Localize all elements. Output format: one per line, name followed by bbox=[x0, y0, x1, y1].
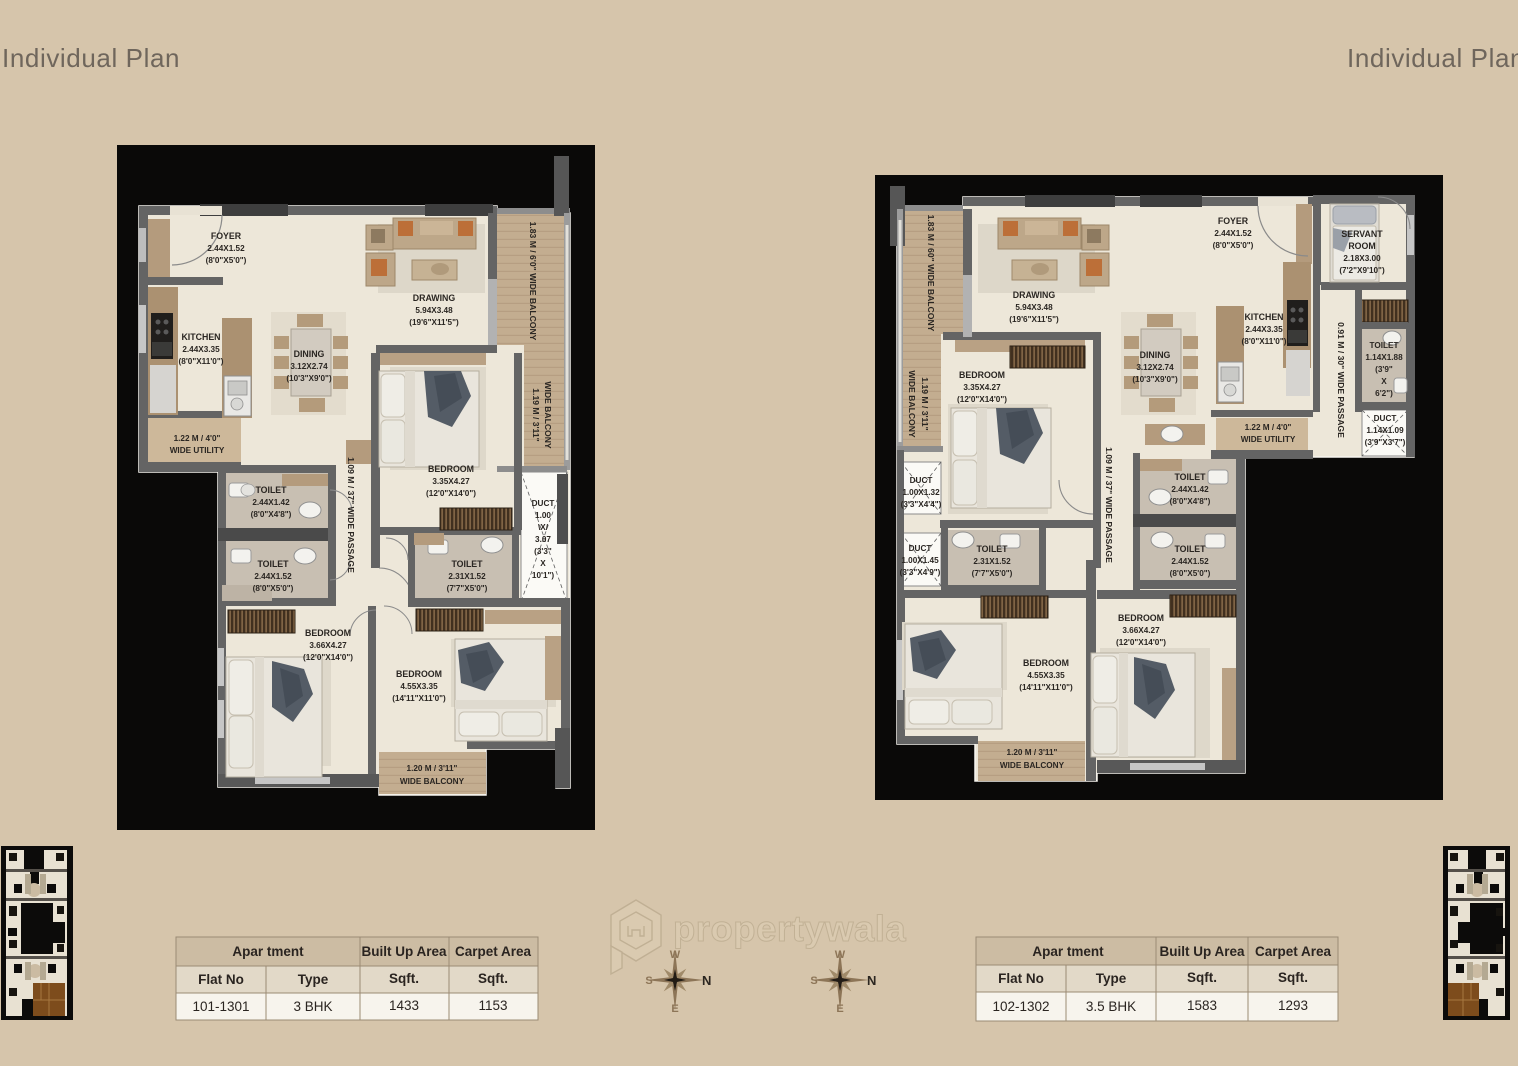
svg-text:WIDE BALCONY: WIDE BALCONY bbox=[907, 370, 917, 438]
svg-text:Individual Plan: Individual Plan bbox=[1347, 43, 1518, 73]
svg-text:2.18X3.00: 2.18X3.00 bbox=[1343, 254, 1381, 263]
svg-text:(8'0"X11'0"): (8'0"X11'0") bbox=[1242, 337, 1287, 346]
svg-text:WIDE UTILITY: WIDE UTILITY bbox=[1241, 435, 1296, 444]
svg-text:Individual Plan: Individual Plan bbox=[2, 43, 180, 73]
svg-text:3.35X4.27: 3.35X4.27 bbox=[432, 477, 470, 486]
svg-text:TOILET: TOILET bbox=[976, 544, 1008, 554]
svg-text:FOYER: FOYER bbox=[1218, 216, 1249, 226]
svg-text:4.55X3.35: 4.55X3.35 bbox=[400, 682, 438, 691]
svg-text:(8'0"X4'8"): (8'0"X4'8") bbox=[251, 510, 292, 519]
svg-text:3.66X4.27: 3.66X4.27 bbox=[309, 641, 347, 650]
svg-text:1.20 M / 3'11": 1.20 M / 3'11" bbox=[407, 764, 458, 773]
svg-text:(7'7"X5'0"): (7'7"X5'0") bbox=[447, 584, 488, 593]
svg-text:KITCHEN: KITCHEN bbox=[1244, 312, 1283, 322]
svg-text:(14'11"X11'0"): (14'11"X11'0") bbox=[1019, 683, 1073, 692]
svg-text:DINING: DINING bbox=[1140, 350, 1171, 360]
svg-text:(12'0"X14'0"): (12'0"X14'0") bbox=[303, 653, 353, 662]
svg-text:3.66X4.27: 3.66X4.27 bbox=[1122, 626, 1160, 635]
svg-text:W: W bbox=[670, 949, 681, 961]
svg-text:4.55X3.35: 4.55X3.35 bbox=[1027, 671, 1065, 680]
svg-text:(10'3"X9'0"): (10'3"X9'0") bbox=[286, 374, 332, 383]
svg-text:DUCT: DUCT bbox=[909, 544, 932, 553]
svg-text:Carpet Area: Carpet Area bbox=[1255, 944, 1332, 959]
svg-text:WIDE BALCONY: WIDE BALCONY bbox=[1000, 761, 1065, 770]
svg-text:1.20 M / 3'11": 1.20 M / 3'11" bbox=[1007, 748, 1058, 757]
svg-text:10'1"): 10'1") bbox=[532, 571, 554, 580]
svg-text:Flat No: Flat No bbox=[198, 972, 244, 987]
svg-text:TOILET: TOILET bbox=[1174, 472, 1206, 482]
svg-text:E: E bbox=[671, 1003, 678, 1015]
svg-text:(19'6"X11'5"): (19'6"X11'5") bbox=[1009, 315, 1059, 324]
svg-text:Type: Type bbox=[1096, 971, 1127, 986]
svg-text:TOILET: TOILET bbox=[1174, 544, 1206, 554]
svg-text:TOILET: TOILET bbox=[255, 485, 287, 495]
svg-text:1.19 M / 3'11": 1.19 M / 3'11" bbox=[920, 377, 930, 430]
svg-text:5.94X3.48: 5.94X3.48 bbox=[415, 306, 453, 315]
svg-text:3.35X4.27: 3.35X4.27 bbox=[963, 383, 1001, 392]
svg-text:2.31X1.52: 2.31X1.52 bbox=[973, 557, 1011, 566]
svg-text:2.44X3.35: 2.44X3.35 bbox=[1245, 325, 1283, 334]
svg-text:TOILET: TOILET bbox=[1370, 341, 1399, 350]
svg-text:DUCT: DUCT bbox=[910, 476, 933, 485]
svg-text:N: N bbox=[867, 973, 876, 988]
svg-text:1433: 1433 bbox=[389, 998, 419, 1013]
svg-text:102-1302: 102-1302 bbox=[992, 999, 1049, 1014]
svg-text:E: E bbox=[836, 1003, 843, 1015]
svg-text:1.00: 1.00 bbox=[535, 511, 551, 520]
svg-text:1293: 1293 bbox=[1278, 998, 1308, 1013]
svg-text:X: X bbox=[1381, 377, 1387, 386]
svg-text:3.12X2.74: 3.12X2.74 bbox=[1136, 363, 1174, 372]
svg-text:N: N bbox=[702, 973, 711, 988]
svg-text:2.44X1.52: 2.44X1.52 bbox=[1171, 557, 1209, 566]
svg-text:(3'3"X4'4"): (3'3"X4'4") bbox=[901, 500, 942, 509]
svg-text:SERVANT: SERVANT bbox=[1341, 229, 1383, 239]
svg-text:WIDE BALCONY: WIDE BALCONY bbox=[543, 381, 553, 449]
svg-text:Apar tment: Apar tment bbox=[232, 944, 304, 959]
svg-text:1.14X1.88: 1.14X1.88 bbox=[1365, 353, 1403, 362]
svg-text:BEDROOM: BEDROOM bbox=[1118, 613, 1164, 623]
svg-text:Apar tment: Apar tment bbox=[1032, 944, 1104, 959]
svg-text:\X/: \X/ bbox=[538, 523, 549, 532]
svg-text:2.44X1.52: 2.44X1.52 bbox=[207, 244, 245, 253]
svg-text:2.44X1.52: 2.44X1.52 bbox=[254, 572, 292, 581]
svg-text:1.00X1.45: 1.00X1.45 bbox=[901, 556, 939, 565]
svg-text:KITCHEN: KITCHEN bbox=[181, 332, 220, 342]
svg-text:ROOM: ROOM bbox=[1348, 241, 1375, 251]
svg-text:Sqft.: Sqft. bbox=[478, 971, 508, 986]
svg-text:BEDROOM: BEDROOM bbox=[305, 628, 351, 638]
svg-text:2.44X3.35: 2.44X3.35 bbox=[182, 345, 220, 354]
svg-text:(12'0"X14'0"): (12'0"X14'0") bbox=[1116, 638, 1166, 647]
svg-text:(3'9": (3'9" bbox=[1375, 365, 1393, 374]
svg-text:(19'6"X11'5"): (19'6"X11'5") bbox=[409, 318, 459, 327]
svg-text:Sqft.: Sqft. bbox=[389, 971, 419, 986]
svg-text:1.22 M / 4'0": 1.22 M / 4'0" bbox=[174, 434, 221, 443]
svg-text:DINING: DINING bbox=[294, 349, 325, 359]
svg-text:(10'3"X9'0"): (10'3"X9'0") bbox=[1132, 375, 1178, 384]
svg-text:BEDROOM: BEDROOM bbox=[396, 669, 442, 679]
svg-text:propertywala: propertywala bbox=[673, 908, 906, 949]
svg-text:(8'0"X5'0"): (8'0"X5'0") bbox=[1213, 241, 1254, 250]
svg-text:1.00X1.32: 1.00X1.32 bbox=[902, 488, 940, 497]
svg-text:Sqft.: Sqft. bbox=[1278, 970, 1308, 985]
svg-text:FOYER: FOYER bbox=[211, 231, 242, 241]
svg-text:5.94X3.48: 5.94X3.48 bbox=[1015, 303, 1053, 312]
svg-text:WIDE UTILITY: WIDE UTILITY bbox=[170, 446, 225, 455]
svg-text:Built Up Area: Built Up Area bbox=[1159, 944, 1244, 959]
svg-text:DUCT: DUCT bbox=[1374, 414, 1397, 423]
svg-text:2.44X1.42: 2.44X1.42 bbox=[1171, 485, 1209, 494]
svg-text:3.12X2.74: 3.12X2.74 bbox=[290, 362, 328, 371]
svg-text:2.44X1.52: 2.44X1.52 bbox=[1214, 229, 1252, 238]
svg-text:3.07: 3.07 bbox=[535, 535, 551, 544]
svg-text:2.44X1.42: 2.44X1.42 bbox=[252, 498, 290, 507]
svg-text:(8'0"X5'0"): (8'0"X5'0") bbox=[1170, 569, 1211, 578]
svg-text:(8'0"X4'8"): (8'0"X4'8") bbox=[1170, 497, 1211, 506]
svg-text:BEDROOM: BEDROOM bbox=[1023, 658, 1069, 668]
svg-text:(8'0"X11'0"): (8'0"X11'0") bbox=[179, 357, 224, 366]
svg-text:DRAWING: DRAWING bbox=[413, 293, 456, 303]
svg-text:(8'0"X5'0"): (8'0"X5'0") bbox=[206, 256, 247, 265]
svg-text:1.14X1.09: 1.14X1.09 bbox=[1366, 426, 1404, 435]
svg-text:WIDE BALCONY: WIDE BALCONY bbox=[400, 777, 465, 786]
svg-text:(14'11"X11'0"): (14'11"X11'0") bbox=[392, 694, 446, 703]
svg-text:1.83 M / 6'0" WIDE BALCONY: 1.83 M / 6'0" WIDE BALCONY bbox=[528, 222, 538, 341]
svg-text:1.09 M / 37" WIDE PASSAGE: 1.09 M / 37" WIDE PASSAGE bbox=[1104, 447, 1114, 563]
svg-text:(7'2"X9'10"): (7'2"X9'10") bbox=[1339, 266, 1385, 275]
svg-text:1583: 1583 bbox=[1187, 998, 1217, 1013]
svg-text:Carpet Area: Carpet Area bbox=[455, 944, 532, 959]
svg-text:W: W bbox=[835, 949, 846, 961]
svg-text:(7'7"X5'0"): (7'7"X5'0") bbox=[972, 569, 1013, 578]
svg-text:(3'3": (3'3" bbox=[534, 547, 552, 556]
svg-text:Type: Type bbox=[298, 972, 329, 987]
svg-text:(3'3"X4'9"): (3'3"X4'9") bbox=[900, 568, 941, 577]
svg-text:S: S bbox=[810, 975, 817, 987]
svg-text:Sqft.: Sqft. bbox=[1187, 970, 1217, 985]
svg-text:1.09 M / 37" WIDE PASSAGE: 1.09 M / 37" WIDE PASSAGE bbox=[346, 457, 356, 573]
svg-text:(8'0"X5'0"): (8'0"X5'0") bbox=[253, 584, 294, 593]
svg-text:3.5 BHK: 3.5 BHK bbox=[1086, 999, 1136, 1014]
svg-text:TOILET: TOILET bbox=[257, 559, 289, 569]
svg-text:1.19 M / 3'11": 1.19 M / 3'11" bbox=[531, 388, 541, 441]
svg-text:S: S bbox=[645, 975, 652, 987]
svg-text:1.83 M / 60" WIDE BALCONY: 1.83 M / 60" WIDE BALCONY bbox=[926, 215, 936, 332]
svg-text:X: X bbox=[540, 559, 546, 568]
svg-text:101-1301: 101-1301 bbox=[192, 999, 249, 1014]
svg-text:BEDROOM: BEDROOM bbox=[959, 370, 1005, 380]
svg-text:(12'0"X14'0"): (12'0"X14'0") bbox=[426, 489, 476, 498]
svg-text:Flat No: Flat No bbox=[998, 971, 1044, 986]
svg-text:TOILET: TOILET bbox=[451, 559, 483, 569]
svg-text:DUCT: DUCT bbox=[532, 499, 555, 508]
svg-text:Built Up Area: Built Up Area bbox=[361, 944, 446, 959]
svg-text:0.91 M / 30" WIDE PASSAGE: 0.91 M / 30" WIDE PASSAGE bbox=[1336, 322, 1346, 438]
svg-text:1.22 M / 4'0": 1.22 M / 4'0" bbox=[1245, 423, 1292, 432]
svg-text:3 BHK: 3 BHK bbox=[293, 999, 332, 1014]
svg-text:2.31X1.52: 2.31X1.52 bbox=[448, 572, 486, 581]
svg-text:1153: 1153 bbox=[478, 998, 507, 1013]
svg-text:6'2"): 6'2") bbox=[1375, 389, 1393, 398]
svg-text:BEDROOM: BEDROOM bbox=[428, 464, 474, 474]
svg-text:DRAWING: DRAWING bbox=[1013, 290, 1056, 300]
svg-text:(3'9"X3'7"): (3'9"X3'7") bbox=[1365, 438, 1406, 447]
svg-text:(12'0"X14'0"): (12'0"X14'0") bbox=[957, 395, 1007, 404]
